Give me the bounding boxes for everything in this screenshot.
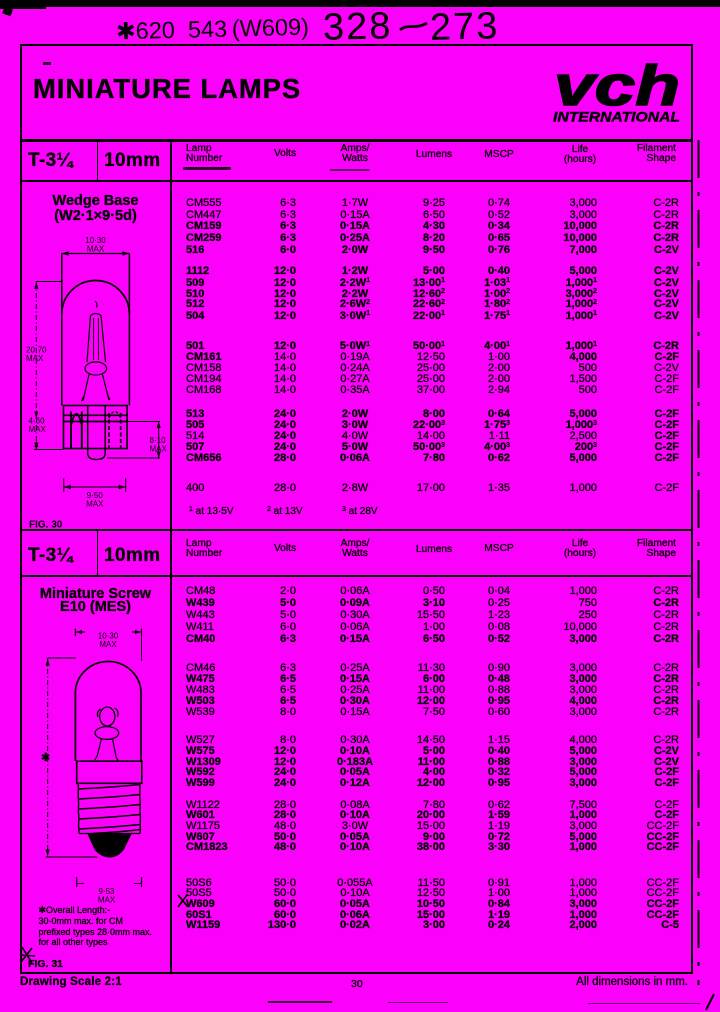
svg-text:INTERNATIONAL: INTERNATIONAL: [553, 109, 680, 125]
svg-text:MAX: MAX: [99, 640, 117, 649]
svg-text:FIG. 30: FIG. 30: [29, 520, 63, 531]
svg-text:MAX: MAX: [26, 354, 44, 363]
svg-text:MAX: MAX: [29, 425, 47, 434]
svg-text:✱: ✱: [41, 752, 50, 764]
svg-text:MAX: MAX: [150, 445, 168, 454]
svg-text:MAX: MAX: [98, 896, 116, 905]
svg-text:MAX: MAX: [86, 500, 104, 509]
svg-text:MAX: MAX: [87, 245, 105, 254]
